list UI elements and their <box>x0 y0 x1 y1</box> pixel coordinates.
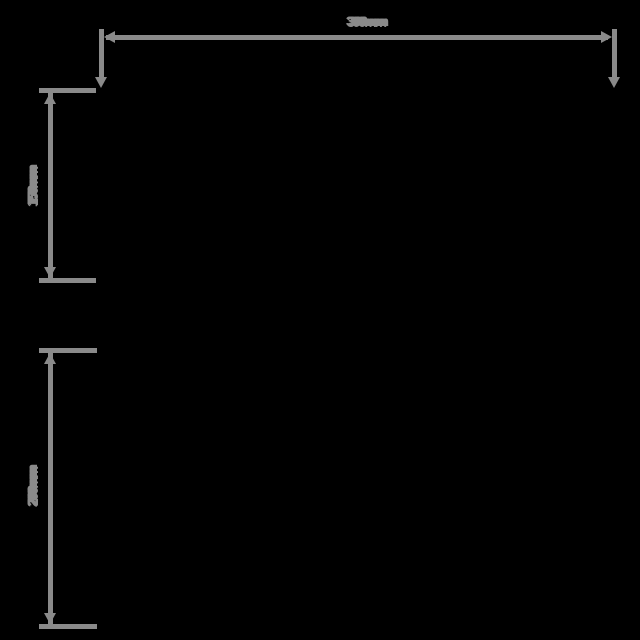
dimension-label-overall-width: 300mm <box>346 13 384 29</box>
extension-line-right <box>612 29 617 78</box>
dimension-label-lower-height: 200mm <box>24 469 40 507</box>
dimension-line-vertical-lower <box>48 353 53 624</box>
tick-bottom-lower <box>39 624 97 629</box>
dimension-drawing: 300mm 150mm 200mm <box>0 0 640 640</box>
dimension-label-upper-height: 150mm <box>24 169 40 207</box>
arrowhead-down-lower-icon <box>44 613 56 624</box>
arrowhead-up-lower-icon <box>44 353 56 364</box>
dimension-line-vertical-upper <box>48 93 53 278</box>
arrowhead-down-right-icon <box>608 77 620 88</box>
dimension-line-horizontal <box>106 35 608 40</box>
arrowhead-left-icon <box>104 31 115 43</box>
arrowhead-right-icon <box>601 31 612 43</box>
arrowhead-up-upper-icon <box>44 93 56 104</box>
arrowhead-down-left-icon <box>95 77 107 88</box>
arrowhead-down-upper-icon <box>44 267 56 278</box>
tick-bottom-upper <box>39 278 96 283</box>
